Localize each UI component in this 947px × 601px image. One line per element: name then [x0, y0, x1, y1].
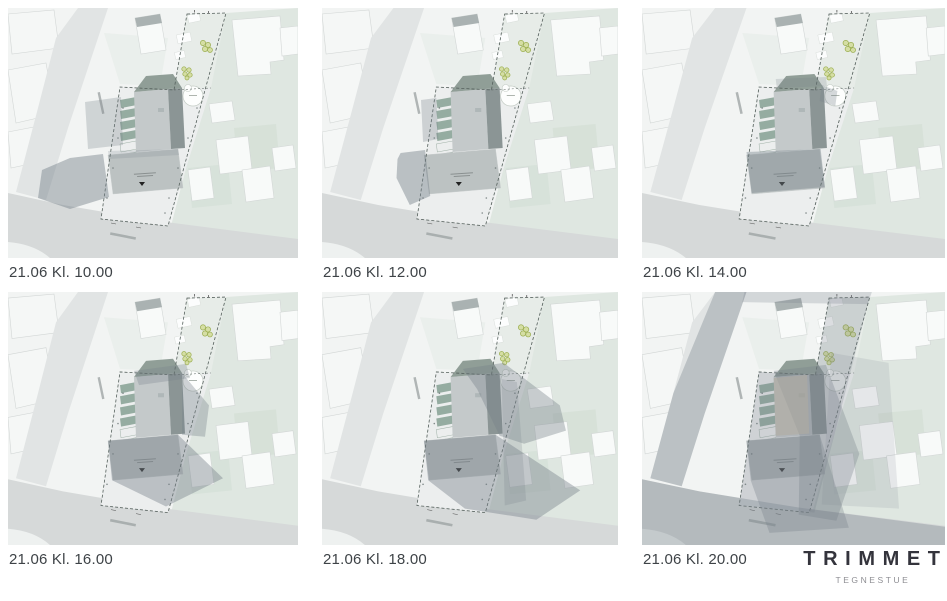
panel-caption: 21.06 Kl. 18.00 [322, 545, 618, 579]
site-plan-map [642, 292, 945, 545]
site-plan-map [322, 8, 618, 258]
trimmet-logo: TRIMMET TEGNESTUE [803, 548, 940, 585]
proposed-building [451, 74, 503, 152]
panel-caption: 21.06 Kl. 10.00 [8, 258, 298, 292]
panel-caption: 21.06 Kl. 16.00 [8, 545, 298, 579]
existing-building [424, 149, 501, 194]
shadow-study-panel: 21.06 Kl. 14.00 [642, 8, 945, 292]
panel-caption: 21.06 Kl. 14.00 [642, 258, 945, 292]
site-plan-map [8, 8, 298, 258]
site-plan [322, 8, 618, 258]
shadow-study-sheet: 21.06 Kl. 10.00 21.06 Kl. 12.00 21.06 Kl… [0, 0, 947, 601]
site-plan [8, 8, 298, 258]
shadow-study-panel: 21.06 Kl. 18.00 [322, 292, 618, 579]
panel-grid: 21.06 Kl. 10.00 21.06 Kl. 12.00 21.06 Kl… [8, 8, 945, 579]
panel-caption: 21.06 Kl. 12.00 [322, 258, 618, 292]
shadow-study-panel: 21.06 Kl. 10.00 [8, 8, 298, 292]
shadow-study-panel: 21.06 Kl. 12.00 [322, 8, 618, 292]
logo-wordmark: TRIMMET [803, 548, 947, 571]
site-plan-map [8, 292, 298, 545]
site-plan [642, 8, 945, 258]
shadow-study-panel: 21.06 Kl. 20.00 [642, 292, 945, 579]
site-plan [642, 292, 945, 545]
site-plan-map [642, 8, 945, 258]
logo-subtitle: TEGNESTUE [803, 575, 942, 585]
site-plan-map [322, 292, 618, 545]
site-plan [322, 292, 618, 545]
proposed-building [134, 74, 185, 152]
site-plan [8, 292, 298, 545]
shadow-study-panel: 21.06 Kl. 16.00 [8, 292, 298, 579]
